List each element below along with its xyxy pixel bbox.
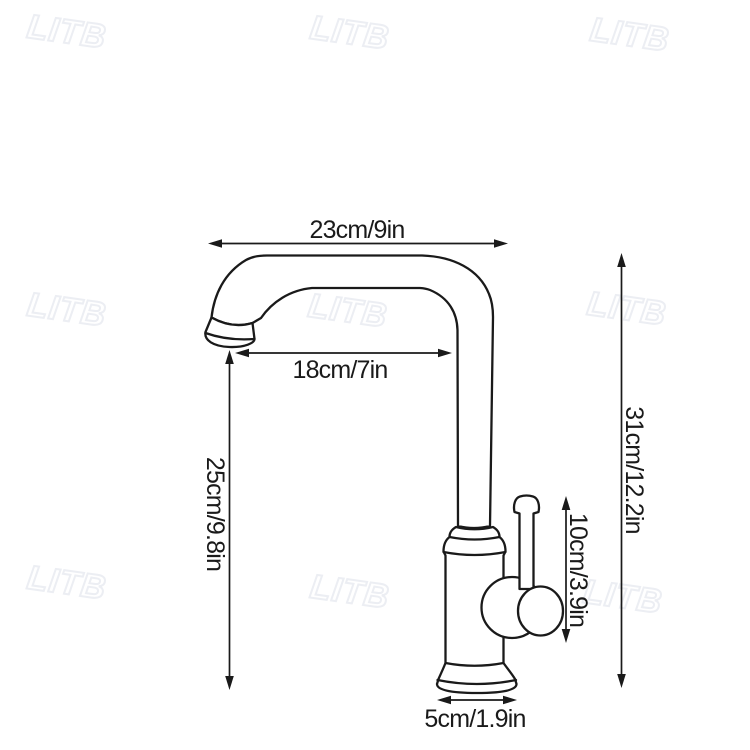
watermark-text: LITB	[308, 9, 392, 58]
arrowhead-up	[225, 350, 234, 364]
diagram-canvas: LITB LITB LITB LITB LITB LITB LITB LITB …	[0, 0, 750, 750]
watermark-text: LITB	[306, 287, 390, 336]
arrowhead-up	[617, 253, 626, 267]
watermark-text: LITB	[588, 11, 672, 60]
arrowhead-left	[437, 696, 451, 705]
dim-handle-height: 10cm/3.9in	[562, 496, 592, 643]
dim-spout-height: 25cm/9.8in	[201, 350, 234, 690]
dimension-label-handle-height: 10cm/3.9in	[564, 513, 592, 627]
arrowhead-down	[562, 629, 571, 643]
watermark-text: LITB	[25, 559, 109, 608]
arrowhead-down	[617, 674, 626, 688]
arrowhead-up	[562, 496, 571, 510]
dimension-label-top-width: 23cm/9in	[309, 216, 404, 244]
arrowhead-right	[438, 349, 452, 358]
watermark-text: LITB	[308, 568, 392, 617]
arrowhead-right	[494, 239, 508, 248]
faucet-handle-lever	[514, 496, 539, 589]
dimension-label-spout-reach: 18cm/7in	[292, 356, 387, 384]
dimension-label-spout-height: 25cm/9.8in	[201, 457, 229, 571]
watermark-text: LITB	[585, 285, 669, 334]
arrowhead-right	[503, 696, 517, 705]
dimension-label-total-height: 31cm/12.2in	[620, 406, 648, 533]
dim-base-width: 5cm/1.9in	[424, 696, 525, 733]
arrowhead-left	[208, 239, 222, 248]
dimension-label-base-width: 5cm/1.9in	[424, 705, 525, 733]
dim-top-width: 23cm/9in	[208, 216, 508, 248]
product-dimension-diagram: LITB LITB LITB LITB LITB LITB LITB LITB …	[0, 0, 750, 750]
faucet-handle-ball-front	[518, 587, 563, 636]
dim-spout-reach: 18cm/7in	[235, 349, 452, 384]
watermark-text: LITB	[581, 573, 665, 622]
arrowhead-down	[225, 676, 234, 690]
watermark-text: LITB	[25, 286, 109, 335]
arrowhead-left	[235, 349, 249, 358]
watermark-text: LITB	[25, 8, 109, 57]
